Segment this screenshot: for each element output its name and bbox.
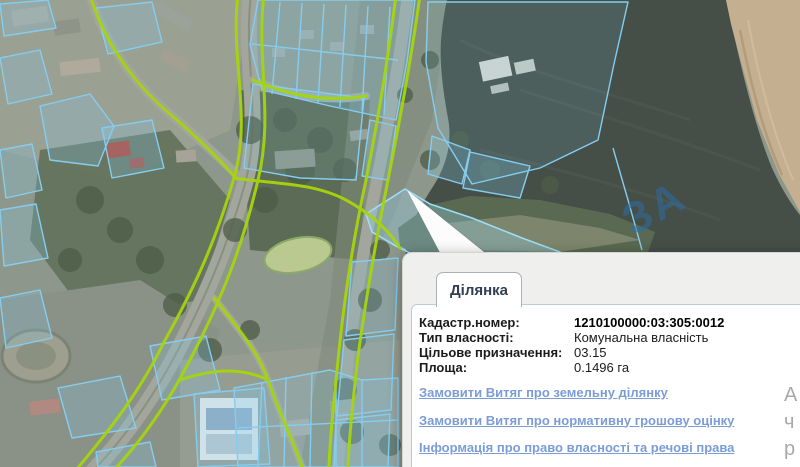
field-designated-purpose: Цільове призначення: 03.15 [419,345,800,360]
cadastral-map-app: ЗА Ділянка Кадастр.номер: 1210100000:03:… [0,0,800,467]
field-cadastral-number: Кадастр.номер: 1210100000:03:305:0012 [419,315,800,330]
field-ownership-type: Тип власності: Комунальна власність [419,330,800,345]
parcel-attributes: Кадастр.номер: 1210100000:03:305:0012 Ти… [412,305,800,375]
link-order-parcel-extract[interactable]: Замовити Витяг про земельну ділянку [419,386,800,400]
parcel-info-panel: Кадастр.номер: 1210100000:03:305:0012 Ти… [411,304,800,467]
parcel-info-popup: Ділянка Кадастр.номер: 1210100000:03:305… [402,252,800,467]
field-label: Тип власності: [419,330,574,345]
field-label: Кадастр.номер: [419,315,574,330]
area-value: 0.1496 га [574,360,629,375]
clipped-text-line: ч [784,409,797,436]
field-area: Площа: 0.1496 га [419,360,800,375]
clipped-text-line: р [784,436,797,463]
link-ownership-rights-info[interactable]: Інформація про право власності та речові… [419,441,800,455]
tab-dilyanka-label: Ділянка [450,282,508,299]
field-label: Площа: [419,360,574,375]
link-order-monetary-valuation-extract[interactable]: Замовити Витяг про нормативну грошову оц… [419,414,800,428]
clipped-text-line: А [784,382,797,409]
clipped-gray-text: А ч р [784,382,797,463]
cadastral-number-value: 1210100000:03:305:0012 [574,315,724,330]
parcel-actions: Замовити Витяг про земельну ділянку Замо… [412,375,800,455]
tab-dilyanka[interactable]: Ділянка [436,272,522,307]
designated-purpose-value: 03.15 [574,345,607,360]
ownership-type-value: Комунальна власність [574,330,708,345]
field-label: Цільове призначення: [419,345,574,360]
